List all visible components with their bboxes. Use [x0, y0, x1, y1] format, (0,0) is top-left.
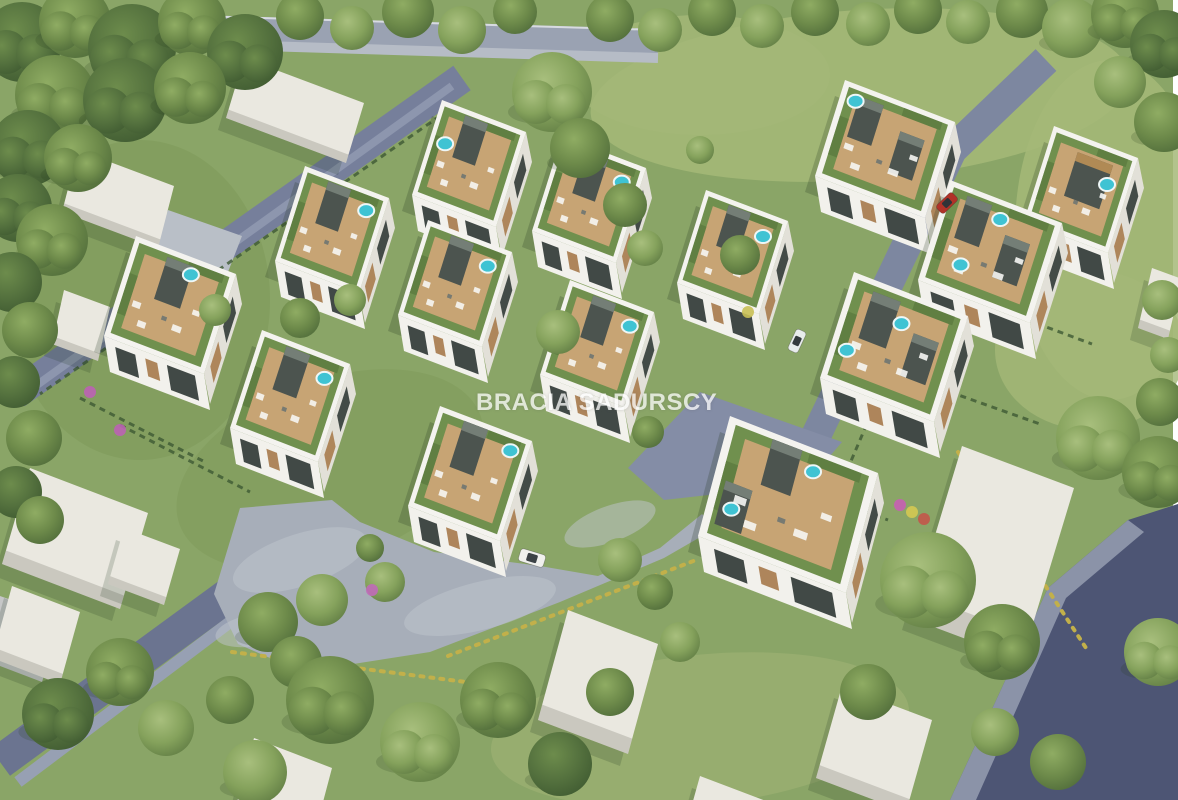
- tree: [846, 2, 890, 46]
- roof-jacuzzi: [755, 230, 771, 243]
- tree: [528, 732, 592, 796]
- roof-jacuzzi: [316, 372, 332, 385]
- roof-jacuzzi: [992, 213, 1008, 226]
- roof-jacuzzi: [1099, 178, 1115, 191]
- tree-lobe: [53, 707, 89, 743]
- tree: [280, 298, 320, 338]
- tree-lobe: [115, 665, 149, 699]
- tree: [6, 410, 62, 466]
- tree: [720, 235, 760, 275]
- roof-jacuzzi: [502, 444, 518, 457]
- tree: [603, 183, 647, 227]
- tree: [598, 538, 642, 582]
- tree: [637, 574, 673, 610]
- tree-lobe: [414, 734, 454, 774]
- tree: [138, 700, 194, 756]
- tree: [365, 562, 405, 602]
- watermark-text: BRACIA SADURSCY: [476, 389, 717, 417]
- tree-lobe: [119, 92, 161, 134]
- tree: [1094, 56, 1146, 108]
- flower-bush: [742, 306, 754, 318]
- tree-lobe: [185, 81, 221, 117]
- tree: [840, 664, 896, 720]
- flower-bush: [906, 506, 918, 518]
- tree: [740, 4, 784, 48]
- roof-jacuzzi: [953, 258, 969, 271]
- tree: [971, 708, 1019, 756]
- tree: [438, 6, 486, 54]
- flower-bush: [918, 513, 930, 525]
- tree: [199, 294, 231, 326]
- tree: [536, 310, 580, 354]
- roof-jacuzzi: [723, 503, 739, 516]
- flower-bush: [894, 499, 906, 511]
- roof-jacuzzi: [848, 95, 864, 108]
- roof-jacuzzi: [622, 320, 638, 333]
- roof-jacuzzi: [437, 137, 453, 150]
- tree: [334, 284, 366, 316]
- roof-jacuzzi: [183, 268, 199, 281]
- tree: [586, 668, 634, 716]
- tree-lobe: [921, 570, 969, 618]
- aerial-development-render: BRACIA SADURSCY: [0, 0, 1178, 800]
- tree: [330, 6, 374, 50]
- roof-jacuzzi: [480, 260, 496, 273]
- tree-lobe: [239, 44, 277, 82]
- flower-bush: [84, 386, 96, 398]
- tree: [946, 0, 990, 44]
- tree: [638, 8, 682, 52]
- tree-lobe: [47, 233, 83, 269]
- tree-lobe: [323, 691, 367, 735]
- tree-lobe: [492, 692, 530, 730]
- tree: [1030, 734, 1086, 790]
- tree: [686, 136, 714, 164]
- tree: [550, 118, 610, 178]
- flower-bush: [366, 584, 378, 596]
- flower-bush: [114, 424, 126, 436]
- roof-jacuzzi: [839, 344, 855, 357]
- tree: [627, 230, 663, 266]
- tree: [660, 622, 700, 662]
- tree: [206, 676, 254, 724]
- tree-lobe: [73, 151, 107, 185]
- tree: [2, 302, 58, 358]
- roof-jacuzzi: [805, 465, 821, 478]
- tree-lobe: [996, 634, 1034, 672]
- roof-jacuzzi: [893, 317, 909, 330]
- roof-jacuzzi: [358, 204, 374, 217]
- tree: [296, 574, 348, 626]
- tree: [16, 496, 64, 544]
- tree: [632, 416, 664, 448]
- tree: [356, 534, 384, 562]
